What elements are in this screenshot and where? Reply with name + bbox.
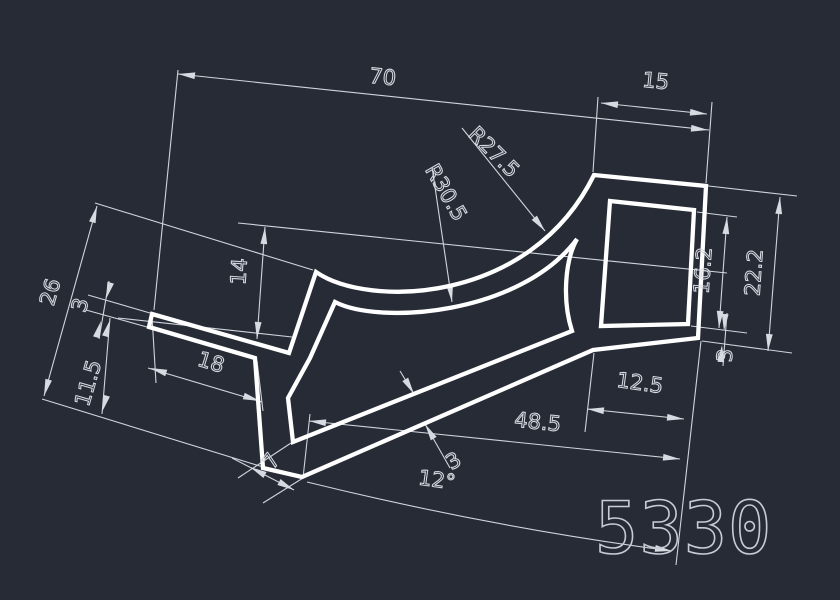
arrowhead [260, 227, 268, 244]
dim-label-radius-inner: R30.5 [420, 160, 471, 225]
arrowhead [690, 109, 708, 118]
arrowhead [102, 319, 113, 337]
dim-label-strut-length: 48.5 [513, 408, 562, 437]
ext-line [95, 203, 313, 270]
dim-label-total-width: 70 [368, 64, 397, 91]
ext-line [42, 399, 263, 467]
arrowhead [309, 418, 327, 427]
arrowhead [587, 406, 605, 415]
dim-label-left-height: 26 [35, 276, 65, 308]
ext-line [303, 414, 310, 478]
ext-line [238, 223, 727, 273]
arrowhead [149, 365, 167, 376]
ext-line [154, 70, 178, 310]
ext-line [88, 295, 150, 313]
arrowhead [41, 379, 52, 397]
arrowhead [722, 217, 730, 234]
ext-line [593, 97, 598, 172]
dim-label-arm-length: 18 [195, 347, 228, 378]
arrowhead [601, 100, 619, 109]
profile-head-hollow [601, 201, 694, 326]
dim-label-head-bottom-width: 12.5 [615, 368, 665, 398]
arrowhead [99, 395, 110, 413]
arrowhead [277, 479, 295, 493]
arrowhead [663, 454, 681, 463]
dim-label-tilt-angle: 12° [417, 466, 457, 495]
part-number: 5330 [595, 486, 772, 570]
dim-label-head-wall-thickness: 3 [713, 348, 738, 363]
dim-label-radius-outer: R27.5 [464, 122, 524, 182]
dim-line-70 [178, 74, 709, 130]
cad-canvas[interactable]: 70 15 R27.5 R30.5 14 26 3 11.5 18 16.2 2… [0, 0, 840, 600]
dim-label-arm-thickness: 3 [67, 295, 94, 314]
arrowhead [775, 197, 783, 214]
ext-line [700, 185, 797, 196]
ext-line [86, 310, 147, 327]
dim-line-22-2 [768, 197, 780, 351]
profile-geometry [149, 175, 706, 477]
arrowhead [716, 311, 724, 328]
arrowhead [765, 334, 773, 351]
arrowhead [103, 282, 114, 300]
arrowhead [89, 205, 100, 223]
cad-drawing: 70 15 R27.5 R30.5 14 26 3 11.5 18 16.2 2… [0, 0, 840, 600]
dim-line-48-5 [309, 421, 680, 459]
dim-label-arm-to-tip: 11.5 [70, 357, 106, 409]
arrowhead [667, 414, 685, 423]
ext-line [585, 353, 594, 432]
dim-label-head-outer-height: 22.2 [740, 248, 767, 296]
dim-label-shoulder-drop: 14 [226, 257, 252, 285]
arrowhead [178, 71, 196, 80]
dim-label-head-top-width: 15 [641, 68, 670, 95]
arrowhead [254, 322, 262, 339]
dim-label-head-inner-height: 16.2 [689, 246, 716, 294]
